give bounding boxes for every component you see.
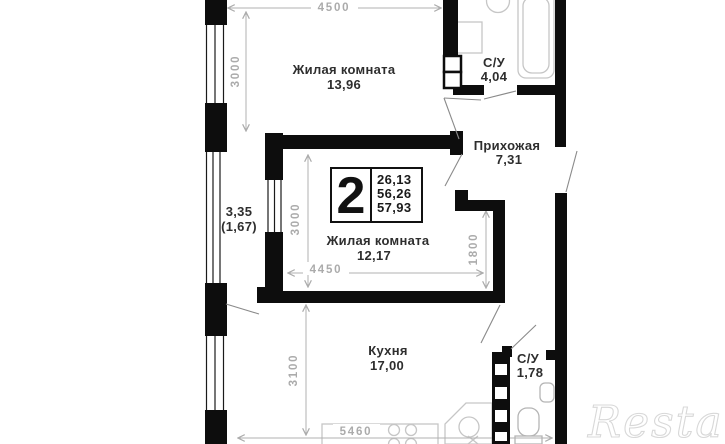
door-bath1-leaf: [444, 98, 481, 100]
dim-label-3000-middle: 3000: [290, 203, 302, 236]
ventilation-shaft-lower: [492, 352, 510, 444]
room-label-living2: Жилая комната 12,17: [326, 233, 430, 263]
dim-label-4500: 4500: [318, 2, 351, 14]
door-bath1-swing: [484, 91, 516, 99]
area-line-2: 56,26: [377, 186, 412, 201]
window-living1: [204, 25, 228, 103]
apartment-info-box: 2 26,13 56,26 57,93: [331, 167, 422, 225]
room-label-hallway: Прихожая 7,31: [474, 138, 541, 167]
window-balcony-glazing: [204, 152, 224, 283]
toilet: [515, 408, 542, 444]
dimension-right-1800: 1800: [468, 211, 486, 288]
door-living2: [445, 154, 462, 186]
rooms-count: 2: [337, 167, 366, 225]
window-kitchen: [204, 336, 228, 410]
svg-text:С/У: С/У: [517, 351, 540, 366]
dim-label-1800: 1800: [468, 233, 480, 266]
sink-lower-bathroom: [540, 383, 554, 402]
svg-text:Прихожая: Прихожая: [474, 138, 541, 153]
room-label-balcony: 3,35 (1,67): [221, 204, 257, 234]
floor-plan-screenshot: 4500 3000 3000 4450 1800 3100 5460: [0, 0, 725, 444]
svg-text:12,17: 12,17: [357, 248, 391, 263]
svg-text:3,35: 3,35: [226, 204, 253, 219]
ventilation-shaft-upper: [444, 56, 461, 88]
dimension-middle-4450: 4450: [288, 262, 483, 276]
svg-text:7,31: 7,31: [496, 152, 523, 167]
svg-text:13,96: 13,96: [327, 77, 361, 92]
dim-label-3100: 3100: [288, 354, 300, 387]
watermark: Restate: [587, 397, 725, 444]
room-label-kitchen: Кухня 17,00: [368, 343, 408, 373]
dim-label-4450: 4450: [310, 264, 343, 276]
dimension-left-lower-3100: 3100: [288, 305, 306, 435]
svg-text:17,00: 17,00: [370, 358, 404, 373]
room-label-bath1: С/У 4,04: [481, 55, 508, 84]
dimension-left-upper-3000: 3000: [230, 12, 246, 131]
svg-text:4,04: 4,04: [481, 69, 508, 84]
svg-text:Жилая комната: Жилая комната: [326, 233, 430, 248]
dim-label-5460: 5460: [340, 426, 373, 438]
dim-label-3000-upper: 3000: [230, 55, 242, 88]
room-label-living1: Жилая комната 13,96: [292, 62, 396, 92]
door-bath2: [511, 325, 536, 349]
bathtub-inner: [523, 0, 549, 73]
door-balcony: [226, 304, 259, 314]
svg-text:Кухня: Кухня: [368, 343, 408, 358]
svg-text:С/У: С/У: [483, 55, 506, 70]
svg-text:Жилая комната: Жилая комната: [292, 62, 396, 77]
window-balcony-to-room: [266, 180, 283, 232]
area-line-3: 57,93: [377, 200, 412, 215]
room-label-bath2: С/У 1,78: [517, 351, 544, 380]
svg-text:1,78: 1,78: [517, 365, 544, 380]
sink-top-bathroom: [487, 0, 510, 13]
svg-text:(1,67): (1,67): [221, 219, 257, 234]
door-kitchen: [481, 305, 500, 343]
area-line-1: 26,13: [377, 172, 412, 187]
floor-plan-svg: 4500 3000 3000 4450 1800 3100 5460: [0, 0, 725, 444]
dimension-top-4500: 4500: [228, 1, 441, 14]
door-entrance: [566, 151, 577, 192]
